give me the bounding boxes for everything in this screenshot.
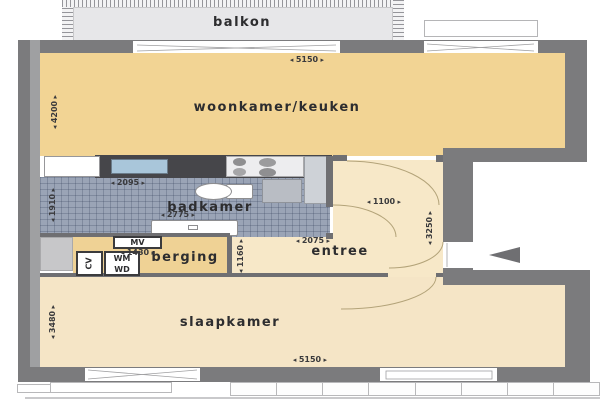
balcony-railing-right — [393, 0, 404, 41]
bath-hall-wall — [326, 156, 333, 207]
dim-living-top-width: 5150 — [270, 55, 344, 65]
entrance-arrow-icon — [489, 247, 520, 263]
dim-storage-height: 1160 — [236, 229, 246, 283]
sill-left — [50, 382, 172, 393]
dim-bathroom-width: 2775 — [140, 210, 216, 220]
hall-jamb-left — [333, 155, 347, 161]
walkway-tiles — [230, 382, 600, 396]
storage-hall-wall — [227, 236, 232, 276]
walkway-tile — [277, 382, 323, 396]
walkway-tile — [323, 382, 369, 396]
burner-icon — [259, 168, 276, 177]
kitchen-sink — [111, 159, 168, 174]
wall-left — [18, 40, 30, 382]
wall-bedroom-top-right — [443, 270, 590, 285]
walkway-tile — [554, 382, 600, 396]
dim-bathroom-height: 1910 — [48, 177, 58, 233]
wall-hall-right — [443, 162, 473, 242]
hall-label: entree — [302, 244, 378, 259]
burner-icon — [259, 158, 276, 167]
walkway-tile — [416, 382, 462, 396]
dim-living-height: 4200 — [50, 84, 60, 140]
bedroom-label: slaapkamer — [170, 315, 290, 330]
living-room-label: woonkamer/keuken — [177, 100, 377, 115]
walkway-tile — [508, 382, 554, 396]
walkway-tile — [462, 382, 508, 396]
dryer-label: WD — [114, 264, 129, 275]
dim-bedroom-bottom-width: 5150 — [272, 355, 348, 365]
wall-living-hall — [443, 148, 587, 162]
wall-left-inner — [30, 40, 40, 382]
fridge — [44, 156, 100, 177]
window-top-right — [424, 41, 538, 53]
burner-icon — [233, 158, 246, 166]
hall-jamb-right — [436, 155, 443, 162]
dim-bedroom-height: 3480 — [48, 294, 58, 350]
balcony-sliding-door — [133, 41, 340, 53]
dim-storage-width: 1430 — [100, 248, 176, 258]
window-bedroom-left — [85, 368, 200, 381]
dim-hall-door-width: 1100 — [346, 197, 422, 207]
exterior-window-sill — [424, 20, 538, 37]
window-bedroom-right — [380, 368, 497, 381]
heater-box: CV — [76, 251, 103, 276]
balcony-label: balkon — [192, 15, 292, 30]
heater-label: CV — [84, 257, 95, 269]
washbasin-tap — [188, 225, 198, 230]
front-door-opening — [444, 242, 473, 268]
shower-cabinet — [262, 179, 302, 203]
burner-icon — [233, 168, 246, 176]
bedroom-floor — [40, 277, 565, 367]
toilet-bowl — [195, 183, 232, 200]
walkway-tile — [230, 382, 277, 396]
floor-plan: MV WM WD CV balkon woonkamer/keuken badk… — [0, 0, 600, 400]
ground-line — [25, 397, 600, 399]
meter-closet — [40, 237, 73, 271]
wall-right-upper — [565, 40, 587, 162]
balcony-railing-top — [62, 0, 403, 7]
bedroom-wall-stub — [436, 273, 443, 277]
walkway-tile — [369, 382, 415, 396]
dim-hall-width: 2075 — [275, 236, 351, 246]
dim-kitchen-counter-width: 2095 — [88, 178, 168, 188]
dim-hall-height: 3250 — [425, 200, 435, 256]
mv-label: MV — [130, 237, 144, 248]
